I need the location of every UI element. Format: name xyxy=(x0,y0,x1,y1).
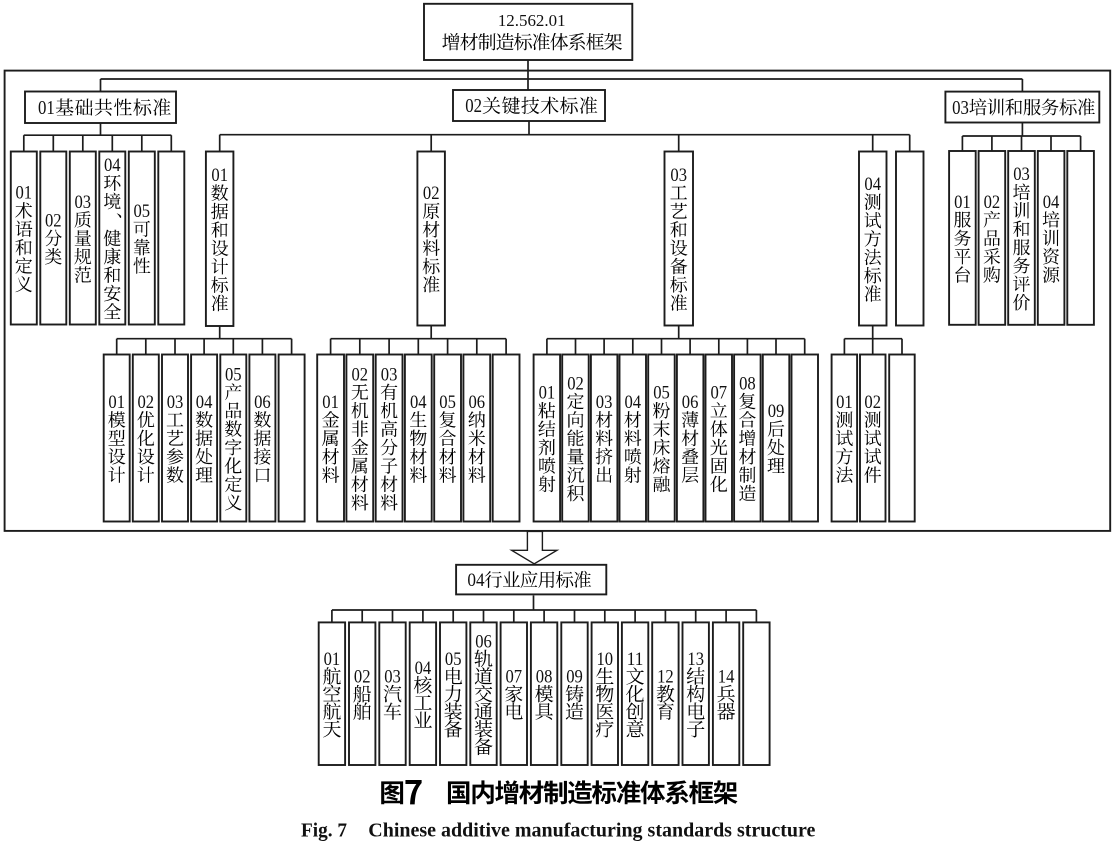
svg-text:08: 08 xyxy=(739,374,756,395)
svg-text:01: 01 xyxy=(108,392,125,413)
svg-text:07: 07 xyxy=(711,383,728,404)
svg-text:06: 06 xyxy=(469,392,486,413)
svg-text:04: 04 xyxy=(1043,192,1060,213)
svg-text:03: 03 xyxy=(952,98,969,119)
svg-text:03: 03 xyxy=(596,392,613,413)
svg-text:02: 02 xyxy=(984,192,1001,213)
svg-text:01: 01 xyxy=(16,183,33,204)
svg-text:12: 12 xyxy=(657,667,674,688)
svg-text:06: 06 xyxy=(254,392,271,413)
svg-text:02: 02 xyxy=(45,210,62,231)
svg-text:14: 14 xyxy=(718,667,735,688)
svg-text:06: 06 xyxy=(682,392,699,413)
svg-text:04: 04 xyxy=(467,570,485,591)
svg-text:02: 02 xyxy=(354,667,371,688)
svg-text:04: 04 xyxy=(410,392,427,413)
svg-text:02: 02 xyxy=(567,374,584,395)
svg-text:09: 09 xyxy=(768,401,785,422)
svg-text:10: 10 xyxy=(597,649,614,670)
svg-text:05: 05 xyxy=(439,392,456,413)
svg-text:01: 01 xyxy=(211,165,228,186)
svg-text:01: 01 xyxy=(539,383,556,404)
svg-text:03: 03 xyxy=(75,192,92,213)
svg-text:03: 03 xyxy=(384,667,401,688)
svg-text:01: 01 xyxy=(836,392,853,413)
svg-text:01: 01 xyxy=(954,192,971,213)
svg-text:02: 02 xyxy=(138,392,155,413)
svg-text:04: 04 xyxy=(625,392,642,413)
svg-text:03: 03 xyxy=(381,364,398,385)
svg-text:04: 04 xyxy=(104,155,121,176)
svg-text:05: 05 xyxy=(225,364,242,385)
svg-text:01: 01 xyxy=(324,649,341,670)
svg-text:07: 07 xyxy=(506,667,523,688)
svg-text:08: 08 xyxy=(536,667,553,688)
svg-text:11: 11 xyxy=(627,649,644,670)
svg-text:06: 06 xyxy=(475,632,492,653)
svg-text:Chinese additive manufacturing: Chinese additive manufacturing standards… xyxy=(368,819,815,841)
svg-text:05: 05 xyxy=(653,383,670,404)
svg-text:04: 04 xyxy=(415,658,432,679)
svg-text:04: 04 xyxy=(864,174,881,195)
svg-text:05: 05 xyxy=(445,649,462,670)
svg-text:02: 02 xyxy=(864,392,881,413)
svg-text:09: 09 xyxy=(566,667,583,688)
svg-text:13: 13 xyxy=(687,649,704,670)
svg-text:12.562.01: 12.562.01 xyxy=(498,11,566,30)
svg-text:02: 02 xyxy=(352,364,369,385)
svg-text:01: 01 xyxy=(38,98,55,119)
svg-text:Fig. 7: Fig. 7 xyxy=(301,819,347,841)
svg-text:02: 02 xyxy=(465,96,482,117)
svg-text:01: 01 xyxy=(322,392,339,413)
svg-text:03: 03 xyxy=(167,392,184,413)
svg-text:03: 03 xyxy=(670,165,687,186)
svg-text:05: 05 xyxy=(134,201,151,222)
svg-text:04: 04 xyxy=(196,392,213,413)
svg-text:02: 02 xyxy=(423,183,440,204)
svg-text:03: 03 xyxy=(1013,164,1030,185)
